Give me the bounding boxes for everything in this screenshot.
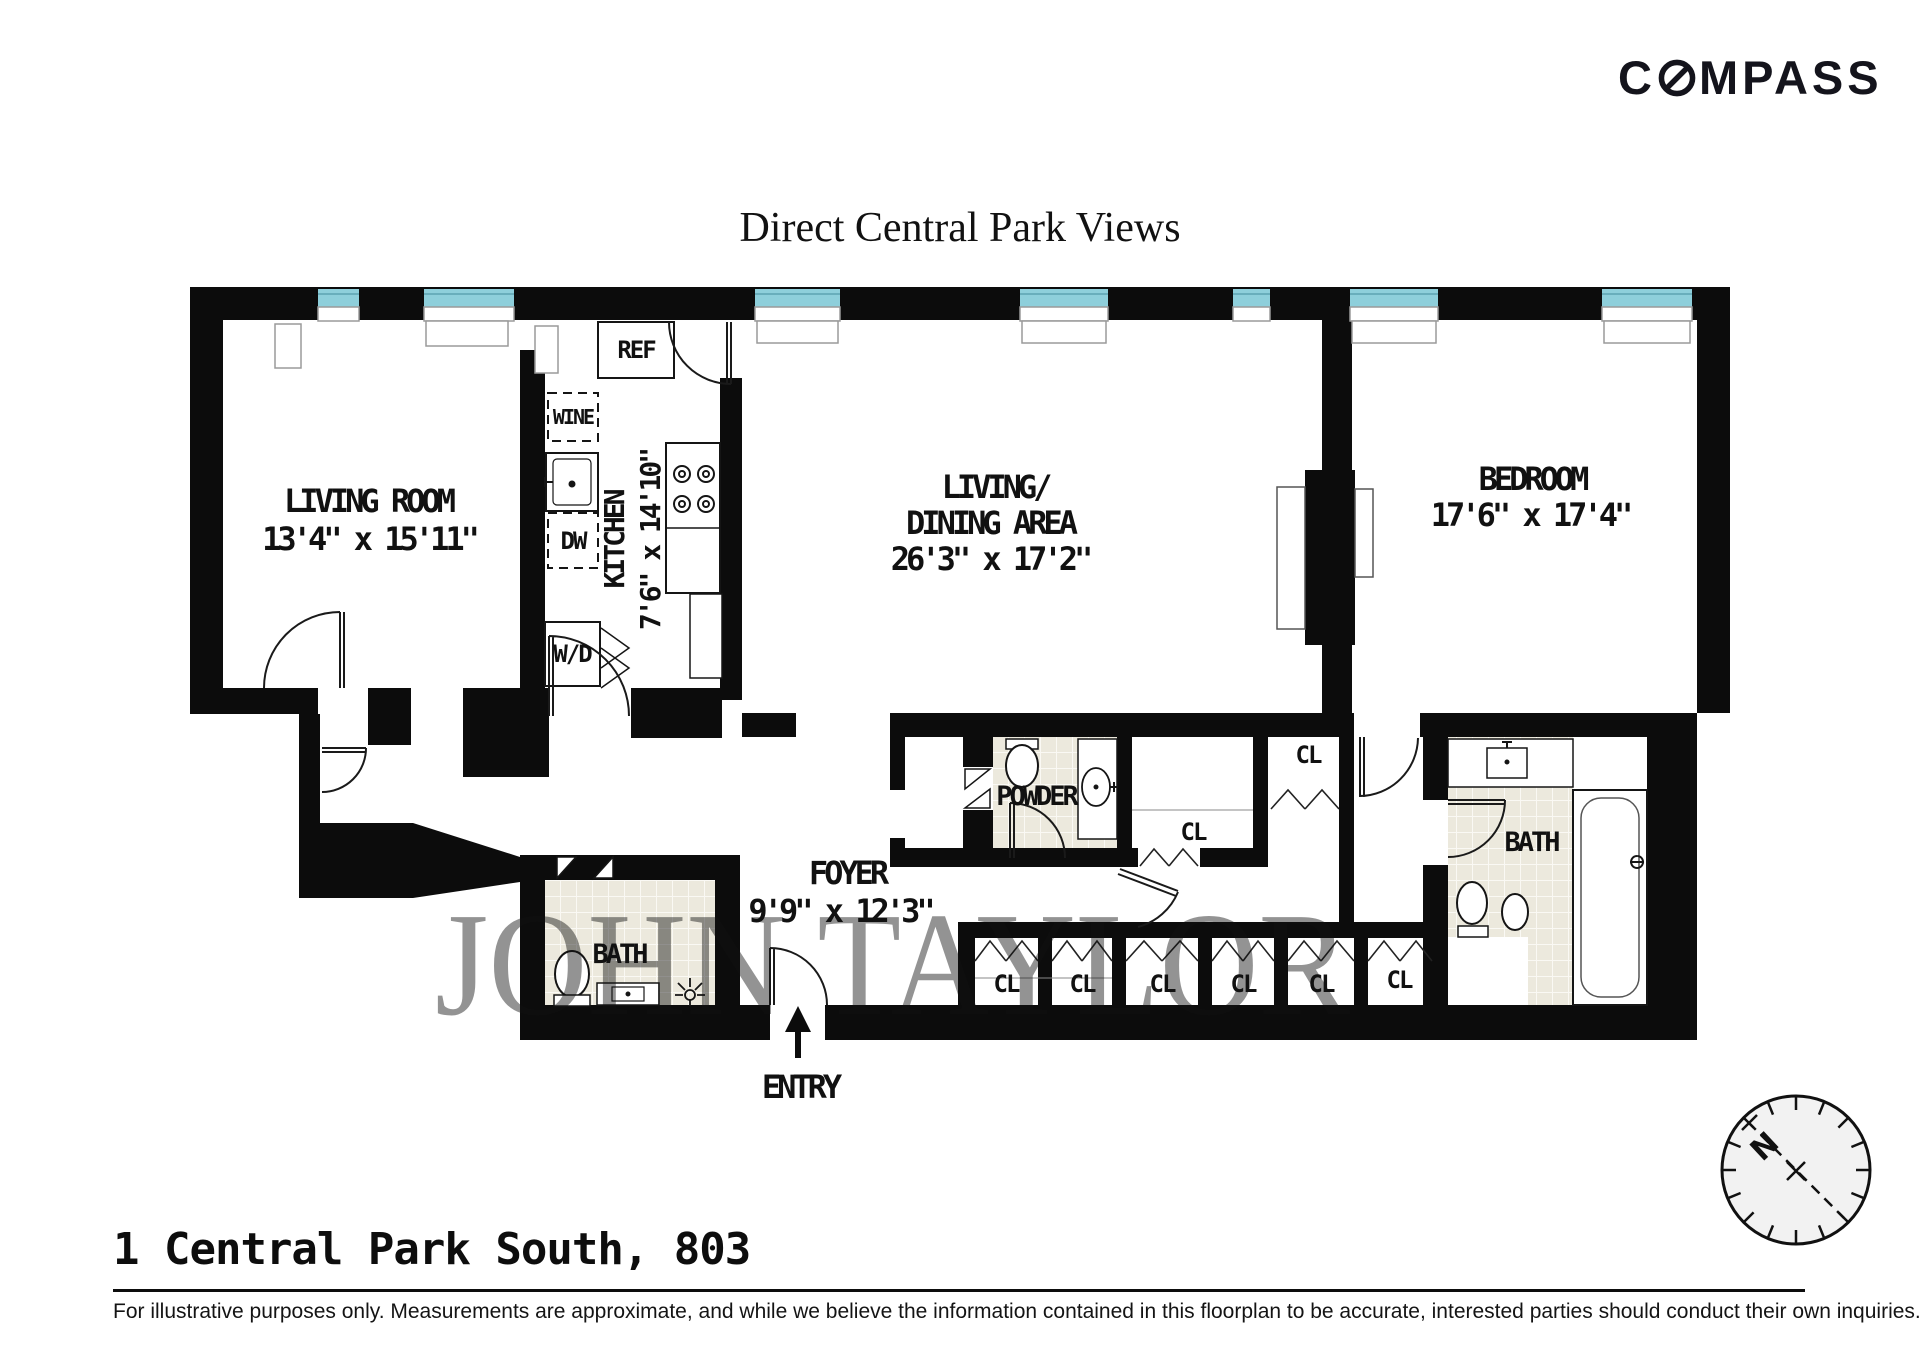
foyer-label: FOYER [809, 854, 890, 892]
ref-label: REF [617, 336, 656, 364]
entry-label: ENTRY [762, 1068, 843, 1106]
closet-label: CL [1231, 970, 1257, 998]
closet-label: CL [1070, 970, 1096, 998]
address: 1 Central Park South, 803 [113, 1224, 750, 1275]
kitchen-label: KITCHEN [598, 489, 631, 588]
compass-rose: N [1722, 1096, 1870, 1244]
bidet [1502, 894, 1528, 930]
wd-label: W/D [553, 640, 592, 668]
hall-bath-label: BATH [592, 939, 647, 970]
kitchen-dims: 7'6" x 14'10" [634, 450, 667, 630]
stove [666, 443, 720, 593]
bedroom-dims: 17'6" x 17'4" [1431, 496, 1630, 534]
closet-label: CL [1387, 966, 1413, 994]
wine-label: WINE [553, 405, 594, 429]
closet-label: CL [1296, 741, 1322, 769]
powder-label: POWDER [996, 781, 1079, 812]
living-room-dims: 13'4" x 15'11" [262, 520, 476, 558]
radiators [275, 321, 1690, 373]
living-room-label: LIVING ROOM [284, 482, 455, 520]
dw-label: DW [561, 527, 588, 555]
kitchen-counter [690, 594, 722, 678]
floorplan-drawing: JOHN TAYLOR LIVING ROOM 13'4" x 15'11" K… [0, 0, 1920, 1358]
living-dining-dims: 26'3" x 17'2" [891, 540, 1090, 578]
closet-label: CL [994, 970, 1020, 998]
closet-label: CL [1181, 818, 1207, 846]
closet-label: CL [1150, 970, 1176, 998]
foyer-dims: 9'9" x 12'3" [748, 892, 932, 930]
floorplan-page: CMPASS Direct Central Park Views [0, 0, 1920, 1358]
footer-divider [113, 1289, 1805, 1292]
powder-opening-marks [965, 769, 990, 808]
master-toilet-tank [1458, 926, 1488, 937]
master-toilet [1457, 882, 1487, 924]
bathtub-inner [1581, 798, 1639, 997]
master-bath-label: BATH [1504, 827, 1559, 858]
living-dining-label-1: LIVING/ [942, 468, 1052, 506]
disclaimer: For illustrative purposes only. Measurem… [113, 1300, 1833, 1324]
living-dining-label-2: DINING AREA [906, 504, 1078, 542]
closet-label: CL [1309, 970, 1335, 998]
bedroom-label: BEDROOM [1479, 460, 1589, 498]
